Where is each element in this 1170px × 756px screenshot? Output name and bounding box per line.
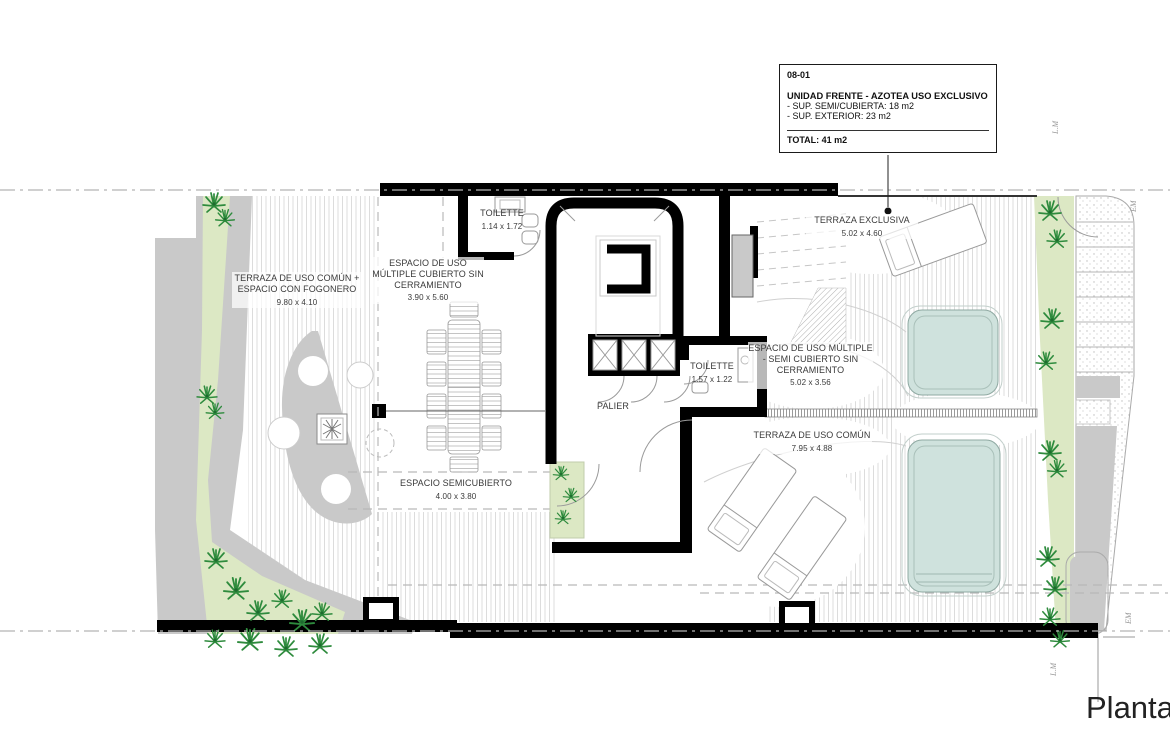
room-name: TERRAZA DE USO COMÚN: [752, 430, 872, 441]
unit-surface-exterior: - SUP. EXTERIOR: 23 m2: [787, 111, 989, 121]
room-dims: 1.14 x 1.72: [462, 222, 542, 232]
wall-notch-1: [366, 600, 396, 622]
plan-title: Planta T: [1086, 690, 1170, 726]
shaft-boxes: [593, 340, 675, 370]
room-name: TOILETTE: [672, 361, 752, 372]
ramp-foot: [1070, 556, 1096, 628]
room-dims: 9.80 x 4.10: [232, 298, 362, 308]
chair: [427, 330, 446, 354]
dining-set: [427, 302, 501, 472]
chair: [482, 426, 501, 450]
pool-2: [902, 434, 1006, 596]
edge-label-lm-bottom: L.M: [1049, 662, 1058, 677]
chair: [450, 457, 478, 472]
room-name: ESPACIO DE USO MÚLTIPLE - SEMI CUBIERTO …: [748, 343, 873, 375]
room-name: ESPACIO SEMICUBIERTO: [396, 478, 516, 489]
deck-edge-band: [765, 409, 1037, 417]
unit-info-box: 08-01 UNIDAD FRENTE - AZOTEA USO EXCLUSI…: [779, 64, 997, 153]
room-label-toilette-2: TOILETTE 1.57 x 1.22: [672, 360, 752, 385]
unit-surface-semi: - SUP. SEMI/CUBIERTA: 18 m2: [787, 101, 989, 111]
room-dims: 1.57 x 1.22: [672, 375, 752, 385]
chair: [427, 394, 446, 418]
room-dims: 3.90 x 5.60: [372, 293, 484, 303]
room-name: TERRAZA DE USO COMÚN + ESPACIO CON FOGON…: [232, 273, 362, 295]
bidet-icon: [522, 231, 538, 244]
room-name: TERRAZA EXCLUSIVA: [806, 215, 918, 226]
room-label-semicubierto: ESPACIO SEMICUBIERTO 4.00 x 3.80: [396, 477, 516, 502]
chair: [482, 362, 501, 386]
room-label-espacio-multiple: ESPACIO DE USO MÚLTIPLE CUBIERTO SIN CER…: [372, 257, 484, 304]
room-label-terraza-comun: TERRAZA DE USO COMÚN 7.95 x 4.88: [752, 429, 872, 454]
planting-strip-right: [1034, 196, 1074, 632]
ramp-landing-1: [1076, 376, 1120, 398]
room-label-toilette-1: TOILETTE 1.14 x 1.72: [462, 207, 542, 232]
room-name: TOILETTE: [462, 208, 542, 219]
room-name: PALIER: [580, 401, 646, 412]
wall-bottom-left: [157, 620, 457, 632]
room-dims: 5.02 x 3.56: [748, 378, 873, 388]
edge-label-lm-top: L.M: [1051, 120, 1060, 135]
chair: [482, 394, 501, 418]
edge-label-em-top: EM: [1129, 199, 1138, 213]
fogonero-icon: [317, 414, 347, 444]
room-label-terraza-exclusiva: TERRAZA EXCLUSIVA 5.02 x 4.60: [806, 214, 918, 239]
chair: [427, 426, 446, 450]
ramp-landing-2: [1076, 400, 1110, 424]
floor-plan: L.M EM EM L.M TERRAZA DE USO COMÚN + ESP…: [0, 0, 1170, 756]
room-dims: 4.00 x 3.80: [396, 492, 516, 502]
edge-label-em-bottom: EM: [1124, 611, 1133, 625]
deck-center-bottom: [380, 512, 557, 622]
room-dims: 5.02 x 4.60: [806, 229, 918, 239]
stair-core: [596, 236, 660, 336]
chair: [482, 330, 501, 354]
room-label-espacio-semi: ESPACIO DE USO MÚLTIPLE - SEMI CUBIERTO …: [748, 342, 873, 389]
unit-total: TOTAL: 41 m2: [787, 130, 989, 145]
wall-stair-enclosure: [551, 203, 678, 464]
duct: [732, 235, 753, 297]
pool-1: [902, 306, 1002, 398]
room-dims: 7.95 x 4.88: [752, 444, 872, 454]
room-name: ESPACIO DE USO MÚLTIPLE CUBIERTO SIN CER…: [372, 258, 484, 290]
unit-code: 08-01: [787, 70, 989, 80]
unit-title: UNIDAD FRENTE - AZOTEA USO EXCLUSIVO: [787, 91, 989, 101]
room-label-terraza-fogonero: TERRAZA DE USO COMÚN + ESPACIO CON FOGON…: [232, 272, 362, 308]
section-marker: [372, 404, 386, 418]
wall-notch-2: [782, 604, 812, 626]
chair: [450, 302, 478, 317]
room-label-palier: PALIER: [580, 400, 646, 413]
chair: [427, 362, 446, 386]
